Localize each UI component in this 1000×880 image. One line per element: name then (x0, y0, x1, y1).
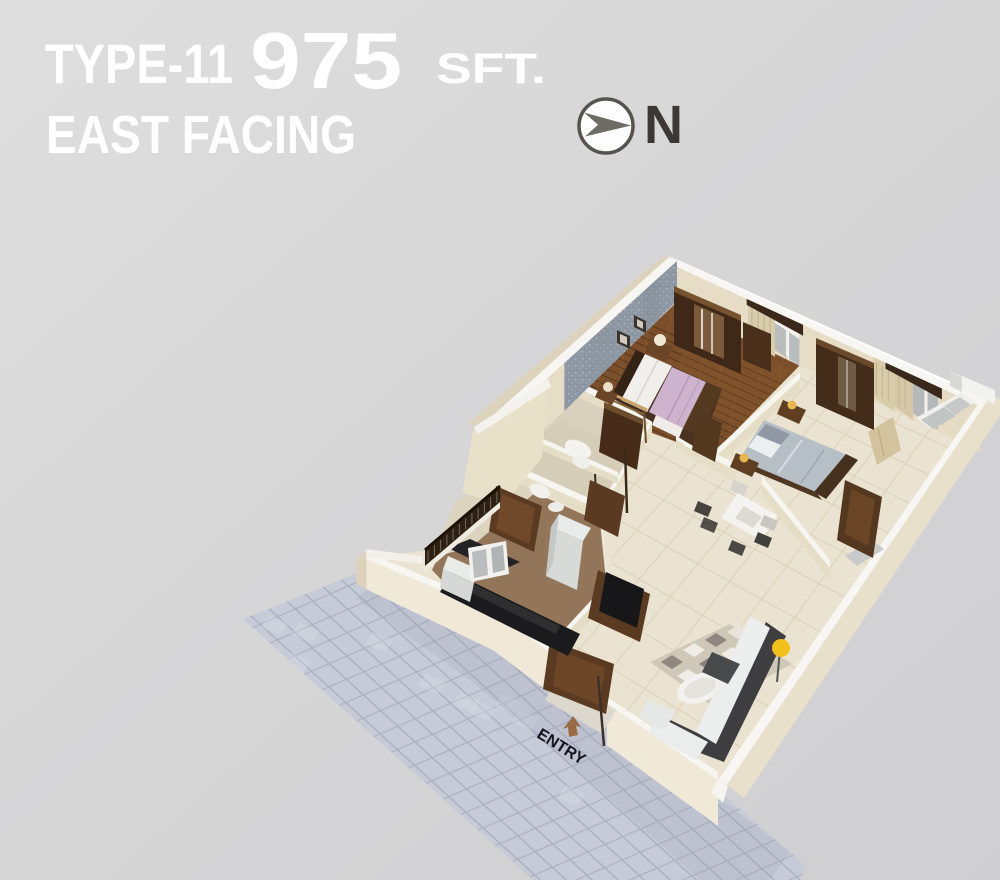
svg-text:SFT.: SFT. (436, 45, 546, 93)
svg-text:N: N (644, 95, 683, 155)
svg-text:EAST FACING: EAST FACING (46, 105, 356, 165)
svg-text:975: 975 (250, 16, 402, 105)
svg-text:TYPE-11: TYPE-11 (45, 32, 233, 95)
